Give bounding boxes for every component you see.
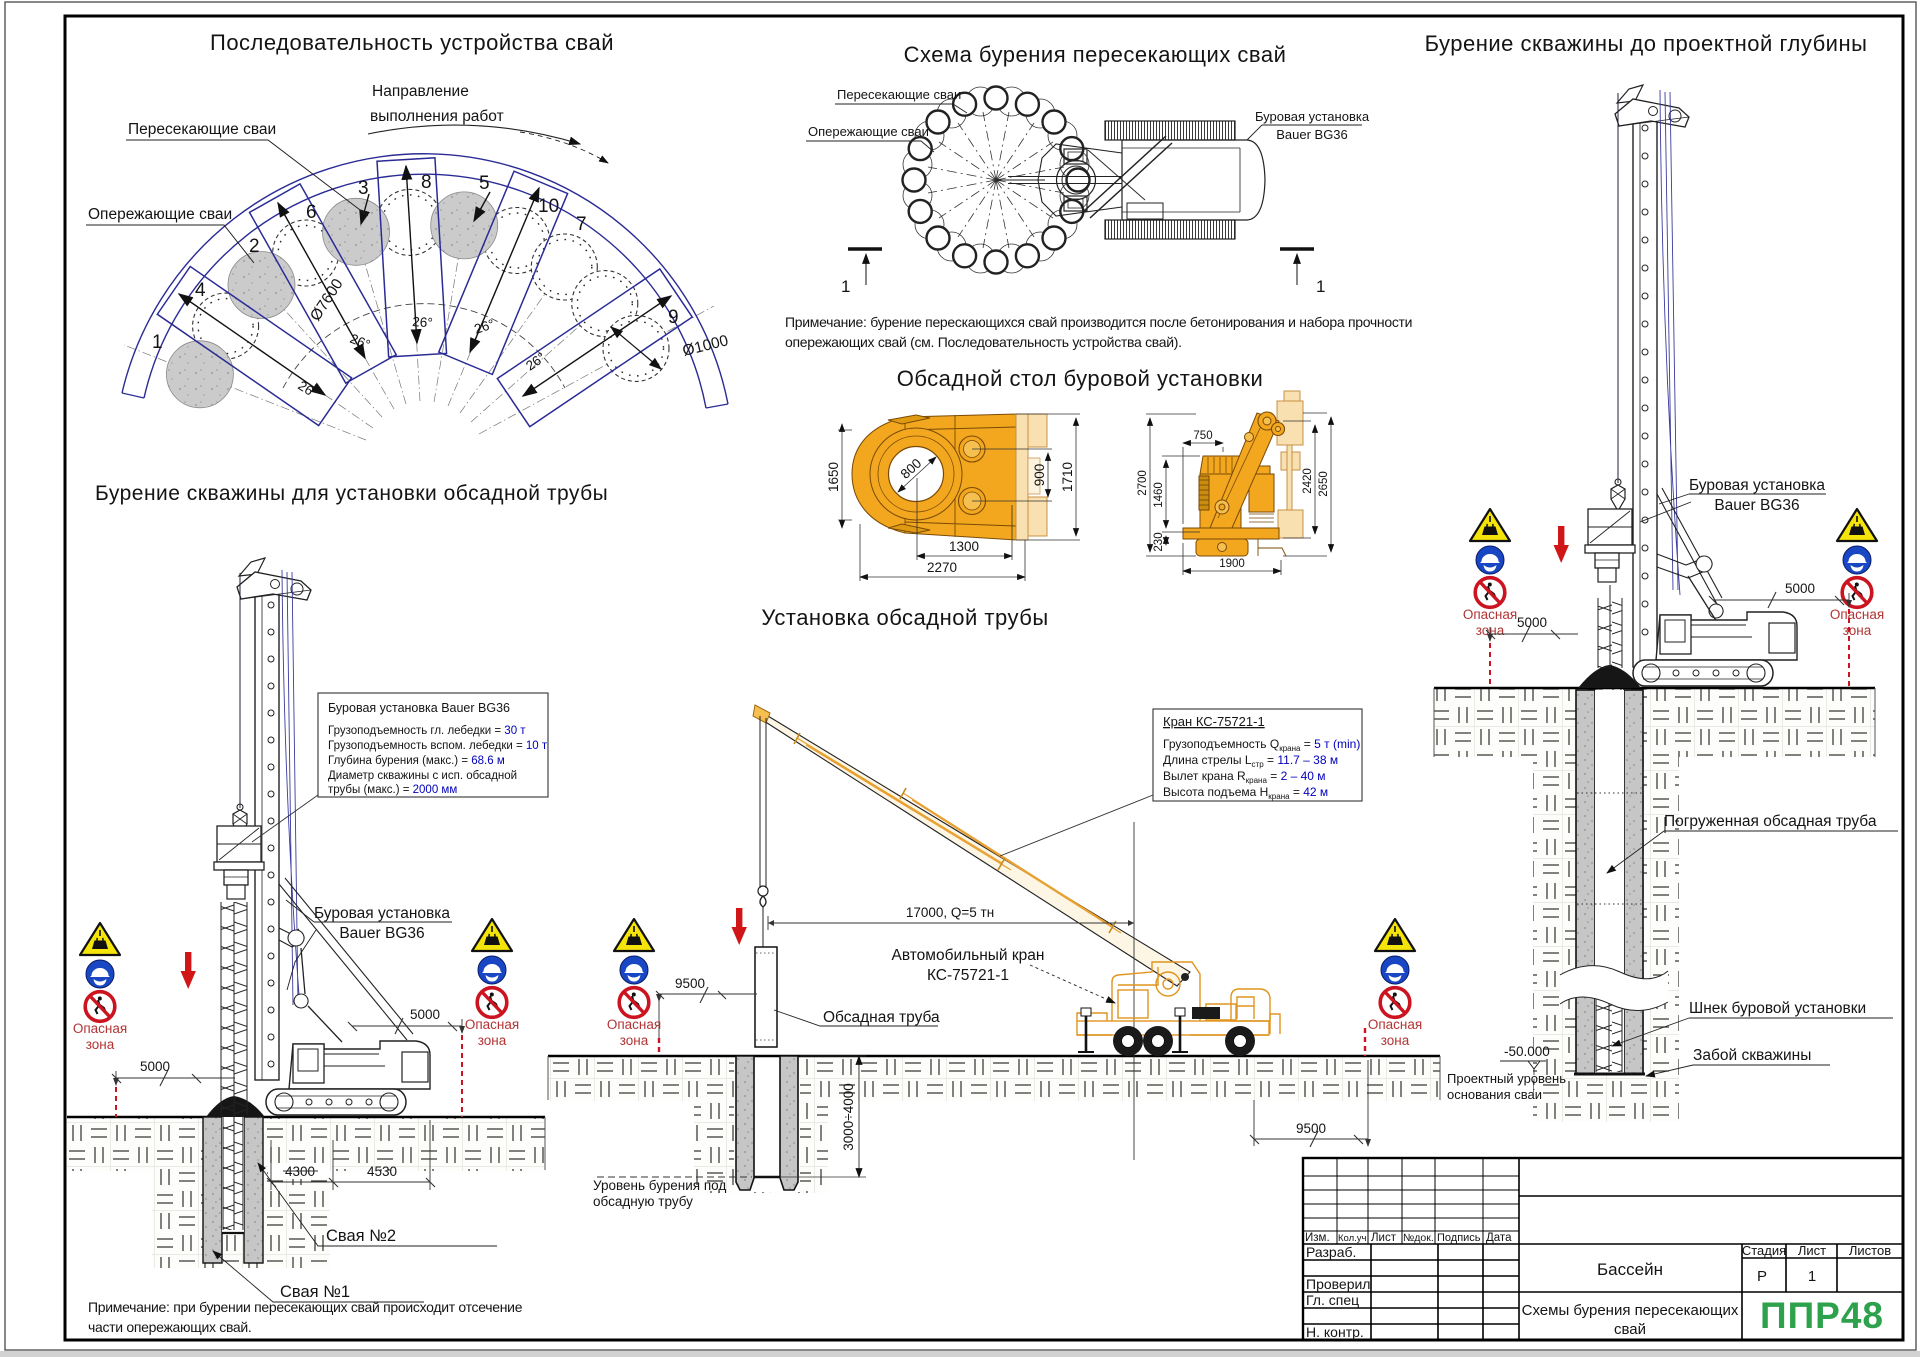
svg-text:Погруженная обсадная труба: Погруженная обсадная труба bbox=[1664, 813, 1877, 830]
svg-text:Кол.уч: Кол.уч bbox=[1338, 1233, 1367, 1244]
svg-text:Уровень бурения под: Уровень бурения под bbox=[593, 1178, 726, 1193]
svg-text:1: 1 bbox=[1316, 277, 1325, 296]
svg-text:Обсадной стол буровой устан: Обсадной стол буровой установки bbox=[897, 366, 1264, 391]
svg-text:1710: 1710 bbox=[1060, 462, 1075, 492]
svg-text:Буровая установка: Буровая установка bbox=[314, 905, 450, 922]
svg-text:Р: Р bbox=[1757, 1268, 1767, 1285]
svg-text:Грузоподъемность Qкрана = 5 т: Грузоподъемность Qкрана = 5 т (min) bbox=[1163, 737, 1360, 753]
svg-text:Bauer BG36: Bauer BG36 bbox=[1276, 127, 1348, 142]
svg-text:Диаметр скважины с исп. обсадн: Диаметр скважины с исп. обсадной bbox=[328, 770, 517, 782]
svg-text:Забой скважины: Забой скважины bbox=[1693, 1047, 1811, 1064]
svg-text:5: 5 bbox=[479, 173, 490, 194]
svg-text:Изм.: Изм. bbox=[1305, 1232, 1330, 1244]
svg-text:Гл. спец: Гл. спец bbox=[1306, 1292, 1359, 1308]
svg-text:Автомобильный кран: Автомобильный кран bbox=[892, 947, 1045, 964]
svg-text:2270: 2270 bbox=[927, 560, 957, 575]
svg-text:Bauer BG36: Bauer BG36 bbox=[339, 925, 424, 942]
svg-text:9500: 9500 bbox=[1296, 1121, 1326, 1136]
svg-text:900: 900 bbox=[1032, 464, 1047, 487]
svg-text:Вылет крана Rкрана = 2 – 40 м: Вылет крана Rкрана = 2 – 40 м bbox=[1163, 769, 1326, 785]
svg-text:Лист: Лист bbox=[1798, 1243, 1826, 1258]
svg-text:выполнения работ: выполнения работ bbox=[370, 108, 504, 125]
svg-text:Пересекающие сваи: Пересекающие сваи bbox=[128, 121, 276, 138]
svg-text:Схема бурения пересекающих: Схема бурения пересекающих свай bbox=[904, 42, 1287, 67]
svg-text:КС-75721-1: КС-75721-1 bbox=[927, 967, 1009, 984]
svg-text:5000: 5000 bbox=[1785, 581, 1815, 596]
svg-text:1: 1 bbox=[152, 332, 163, 353]
svg-text:Листов: Листов bbox=[1849, 1243, 1891, 1258]
svg-text:2: 2 bbox=[249, 236, 260, 257]
svg-text:Опережающие сваи: Опережающие сваи bbox=[88, 206, 232, 223]
svg-text:Обсадная труба: Обсадная труба bbox=[823, 1009, 940, 1026]
svg-text:2420: 2420 bbox=[1302, 468, 1314, 494]
svg-text:№док.: №док. bbox=[1403, 1232, 1434, 1244]
svg-text:6: 6 bbox=[306, 202, 317, 223]
svg-text:опережающих свай (см. Последов: опережающих свай (см. Последовательность… bbox=[785, 334, 1182, 350]
svg-text:ППР48: ППР48 bbox=[1760, 1295, 1884, 1336]
svg-text:Шнек буровой установки: Шнек буровой установки bbox=[1689, 1000, 1866, 1017]
svg-text:Высота подъема Нкрана = 42 м: Высота подъема Нкрана = 42 м bbox=[1163, 785, 1328, 801]
svg-text:Свая №1: Свая №1 bbox=[280, 1283, 350, 1301]
svg-text:Свая №2: Свая №2 bbox=[326, 1227, 396, 1245]
svg-text:Буровая установка Bauer BG36: Буровая установка Bauer BG36 bbox=[328, 701, 510, 715]
svg-text:Стадия: Стадия bbox=[1742, 1243, 1786, 1258]
svg-text:26°: 26° bbox=[412, 314, 433, 330]
svg-text:Опережающие сваи: Опережающие сваи bbox=[808, 124, 929, 139]
svg-text:Буровая установка: Буровая установка bbox=[1255, 109, 1370, 124]
svg-text:свай: свай bbox=[1614, 1321, 1646, 1338]
svg-text:Бурение скважины для устано: Бурение скважины для установки обсадной … bbox=[95, 482, 608, 505]
svg-text:Н. контр.: Н. контр. bbox=[1306, 1324, 1364, 1340]
svg-text:Разраб.: Разраб. bbox=[1306, 1244, 1356, 1260]
svg-text:17000, Q=5 тн: 17000, Q=5 тн bbox=[906, 905, 994, 920]
svg-text:Кран КС-75721-1: Кран КС-75721-1 bbox=[1163, 714, 1265, 729]
svg-text:4530: 4530 bbox=[367, 1164, 397, 1179]
svg-text:1: 1 bbox=[1808, 1268, 1816, 1285]
svg-text:10: 10 bbox=[538, 196, 559, 217]
svg-text:Схемы бурения пересекающих: Схемы бурения пересекающих bbox=[1522, 1302, 1739, 1319]
svg-text:5000: 5000 bbox=[410, 1007, 440, 1022]
svg-text:Грузоподъемность гл. лебедки =: Грузоподъемность гл. лебедки = 30 т bbox=[328, 725, 526, 737]
svg-text:Проектный уровень: Проектный уровень bbox=[1447, 1071, 1566, 1086]
svg-text:Бурение скважины до проектн: Бурение скважины до проектной глубины bbox=[1425, 31, 1868, 56]
svg-text:8: 8 bbox=[421, 172, 432, 193]
svg-text:5000: 5000 bbox=[1517, 615, 1547, 630]
svg-text:обсадную трубу: обсадную трубу bbox=[593, 1194, 693, 1209]
svg-text:1650: 1650 bbox=[826, 462, 841, 492]
svg-text:Грузоподъемность вспом. лебедк: Грузоподъемность вспом. лебедки = 10 т bbox=[328, 740, 548, 752]
svg-text:-50.000: -50.000 bbox=[1504, 1044, 1550, 1059]
svg-text:1900: 1900 bbox=[1219, 558, 1245, 570]
svg-text:3000÷4000: 3000÷4000 bbox=[841, 1083, 856, 1150]
svg-text:части опережающих свай.: части опережающих свай. bbox=[88, 1319, 252, 1335]
svg-text:Установка обсадной трубы: Установка обсадной трубы bbox=[761, 605, 1048, 630]
svg-text:Примечание: бурение перескающи: Примечание: бурение перескающихся свай п… bbox=[785, 314, 1412, 330]
svg-text:1: 1 bbox=[841, 277, 850, 296]
svg-text:9: 9 bbox=[668, 307, 679, 328]
svg-text:230: 230 bbox=[1153, 532, 1165, 551]
svg-text:Проверил: Проверил bbox=[1306, 1276, 1370, 1292]
svg-text:2650: 2650 bbox=[1318, 471, 1330, 497]
svg-text:1300: 1300 bbox=[949, 539, 979, 554]
svg-text:750: 750 bbox=[1193, 430, 1212, 442]
svg-text:3: 3 bbox=[358, 178, 369, 199]
svg-text:основания сваи: основания сваи bbox=[1447, 1087, 1542, 1102]
svg-text:Примечание: при бурении пересе: Примечание: при бурении пересекающих сва… bbox=[88, 1299, 523, 1315]
svg-text:Направление: Направление bbox=[372, 83, 469, 100]
svg-text:1460: 1460 bbox=[1153, 482, 1165, 508]
svg-text:Последовательность устройства: Последовательность устройства свай bbox=[210, 30, 614, 55]
svg-text:Буровая установка: Буровая установка bbox=[1689, 477, 1825, 494]
svg-text:7: 7 bbox=[576, 214, 587, 235]
svg-text:Бассейн: Бассейн bbox=[1597, 1260, 1663, 1279]
svg-text:5000: 5000 bbox=[140, 1059, 170, 1074]
svg-text:Дата: Дата bbox=[1486, 1232, 1512, 1244]
svg-text:трубы (макс.) = 2000 мм: трубы (макс.) = 2000 мм bbox=[328, 784, 457, 796]
svg-text:Подпись: Подпись bbox=[1437, 1232, 1481, 1244]
svg-text:4: 4 bbox=[195, 280, 206, 301]
svg-text:Длина стрелы Lстр = 11.7 – 38: Длина стрелы Lстр = 11.7 – 38 м bbox=[1163, 753, 1338, 769]
svg-text:2700: 2700 bbox=[1137, 470, 1149, 496]
svg-text:9500: 9500 bbox=[675, 976, 705, 991]
svg-text:Глубина бурения (макс.) = 68.6: Глубина бурения (макс.) = 68.6 м bbox=[328, 755, 505, 767]
svg-text:Пересекающие сваи: Пересекающие сваи bbox=[837, 87, 961, 102]
svg-text:Лист: Лист bbox=[1371, 1232, 1397, 1244]
svg-text:Bauer BG36: Bauer BG36 bbox=[1714, 497, 1799, 514]
